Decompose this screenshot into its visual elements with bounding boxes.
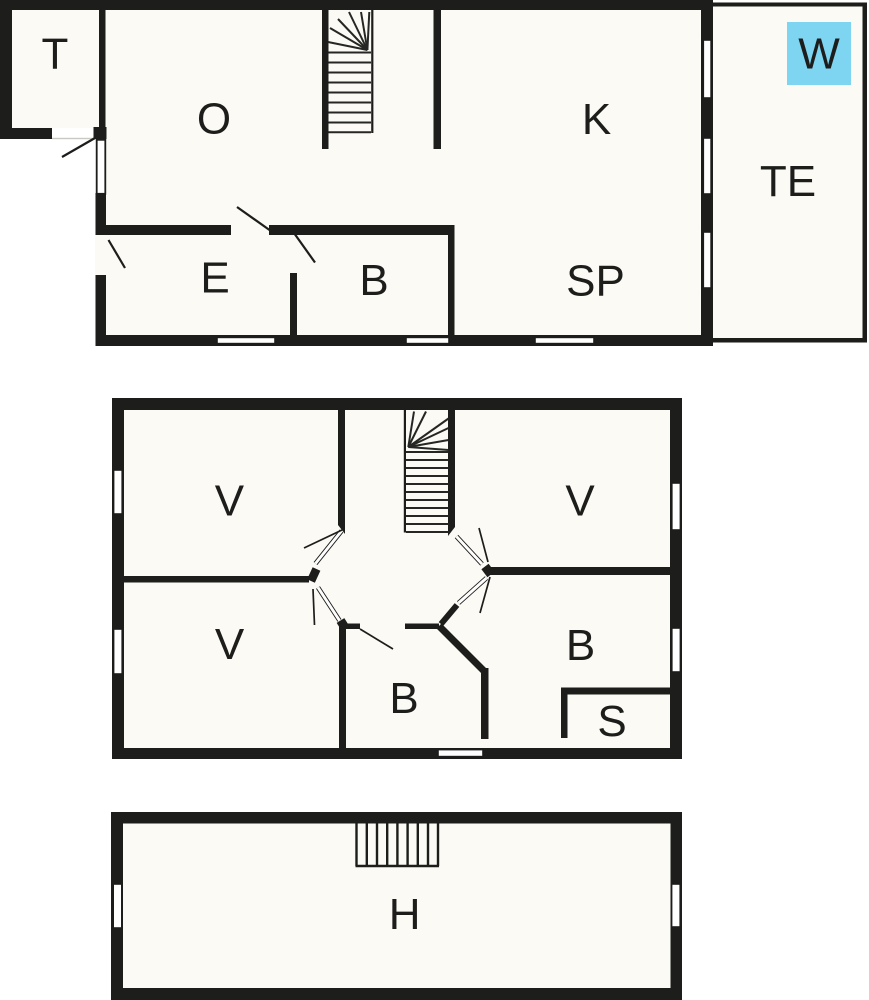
svg-text:S: S <box>597 697 626 746</box>
svg-text:K: K <box>582 95 611 144</box>
svg-text:V: V <box>215 476 245 525</box>
svg-text:V: V <box>565 477 595 526</box>
svg-text:H: H <box>389 890 421 939</box>
svg-text:T: T <box>42 29 69 78</box>
svg-text:TE: TE <box>760 157 816 206</box>
svg-text:B: B <box>389 674 418 723</box>
svg-text:O: O <box>197 95 231 144</box>
svg-text:B: B <box>359 256 388 305</box>
svg-text:B: B <box>566 621 595 670</box>
svg-text:W: W <box>798 30 840 79</box>
svg-text:V: V <box>215 620 245 669</box>
svg-text:SP: SP <box>566 257 625 306</box>
svg-text:E: E <box>200 254 229 303</box>
